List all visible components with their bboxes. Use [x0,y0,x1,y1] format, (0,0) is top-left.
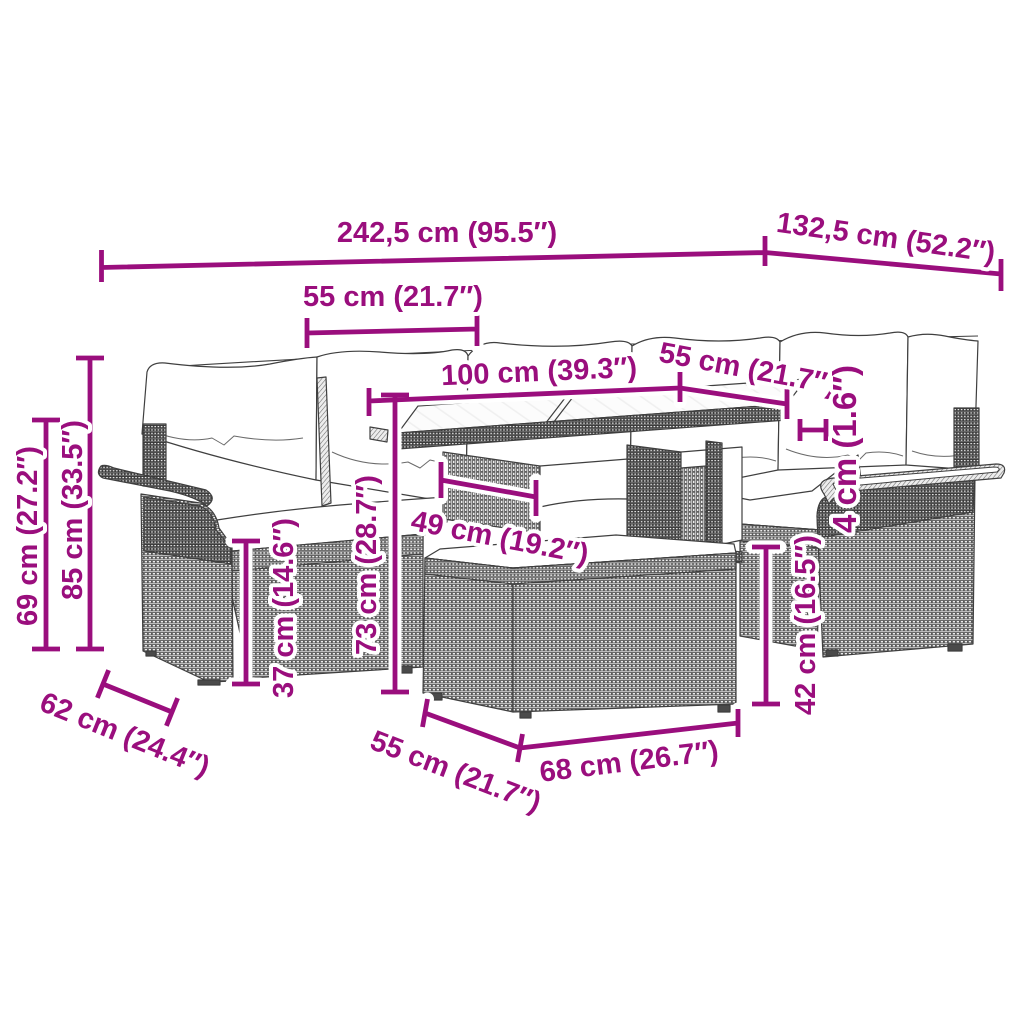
svg-text:37 cm (14.6″): 37 cm (14.6″) [268,518,300,698]
svg-text:42 cm (16.5″): 42 cm (16.5″) [790,535,822,715]
svg-text:242,5 cm (95.5″): 242,5 cm (95.5″) [337,217,557,249]
svg-text:73 cm (28.7″): 73 cm (28.7″) [351,475,383,655]
svg-text:85 cm (33.5″): 85 cm (33.5″) [57,420,89,600]
svg-text:55 cm (21.7″): 55 cm (21.7″) [303,281,483,313]
svg-text:4 cm (1.6″): 4 cm (1.6″) [826,365,863,533]
svg-text:69 cm (27.2″): 69 cm (27.2″) [12,446,44,626]
